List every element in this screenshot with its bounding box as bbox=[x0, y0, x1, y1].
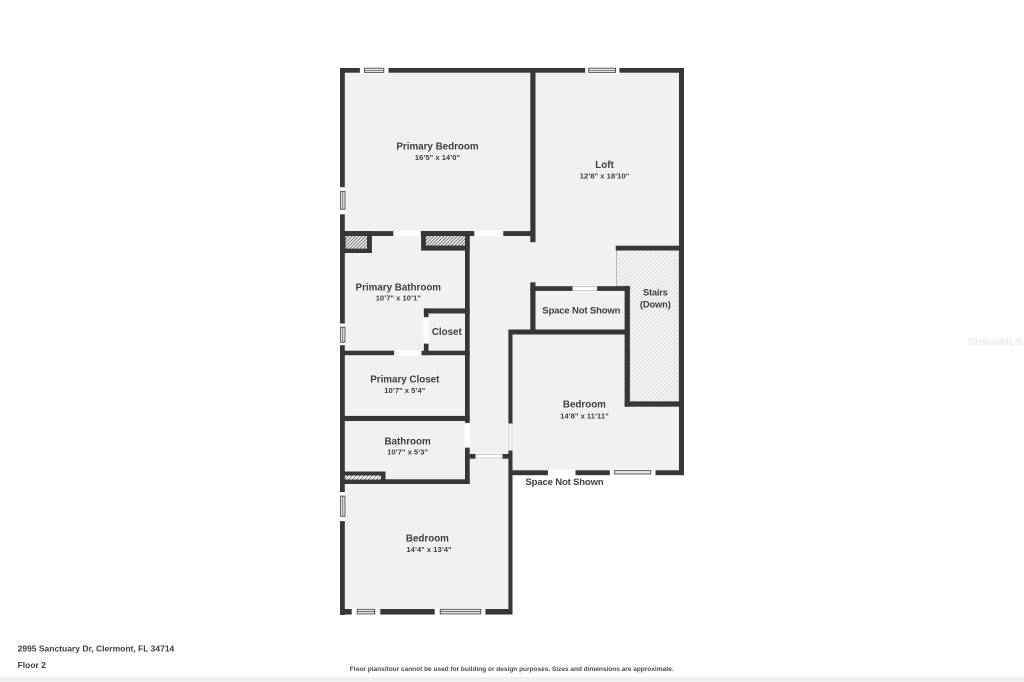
svg-text:Stairs: Stairs bbox=[643, 288, 668, 298]
svg-text:10’7" x 5’3": 10’7" x 5’3" bbox=[387, 448, 428, 457]
svg-text:10’7" x 10’1": 10’7" x 10’1" bbox=[376, 294, 422, 303]
svg-text:Floor plans/tour cannot be use: Floor plans/tour cannot be used for buil… bbox=[350, 666, 674, 673]
svg-text:Bedroom: Bedroom bbox=[563, 400, 606, 411]
svg-text:12’8" x 18’10": 12’8" x 18’10" bbox=[580, 172, 630, 181]
svg-text:Closet: Closet bbox=[432, 327, 463, 338]
svg-text:Bedroom: Bedroom bbox=[406, 533, 449, 544]
svg-text:Bathroom: Bathroom bbox=[384, 436, 431, 447]
svg-text:16’5" x 14’0": 16’5" x 14’0" bbox=[415, 153, 461, 162]
svg-text:Space Not Shown: Space Not Shown bbox=[526, 477, 604, 488]
svg-text:(Down): (Down) bbox=[640, 299, 671, 309]
svg-text:14’8" x 11’11": 14’8" x 11’11" bbox=[560, 411, 609, 420]
svg-text:14’4" x 13’4": 14’4" x 13’4" bbox=[406, 545, 452, 554]
svg-text:Floor 2: Floor 2 bbox=[18, 660, 47, 670]
svg-text:2995 Sanctuary Dr, Clermont, F: 2995 Sanctuary Dr, Clermont, FL 34714 bbox=[18, 644, 175, 654]
svg-text:Primary Closet: Primary Closet bbox=[370, 375, 440, 386]
svg-text:10’7" x 5’4": 10’7" x 5’4" bbox=[384, 386, 425, 395]
svg-text:Primary Bedroom: Primary Bedroom bbox=[396, 142, 479, 153]
svg-text:Primary Bathroom: Primary Bathroom bbox=[356, 283, 442, 294]
svg-text:Space Not Shown: Space Not Shown bbox=[542, 305, 620, 316]
svg-text:StellarMLS: StellarMLS bbox=[968, 336, 1022, 348]
svg-text:Loft: Loft bbox=[595, 160, 614, 171]
